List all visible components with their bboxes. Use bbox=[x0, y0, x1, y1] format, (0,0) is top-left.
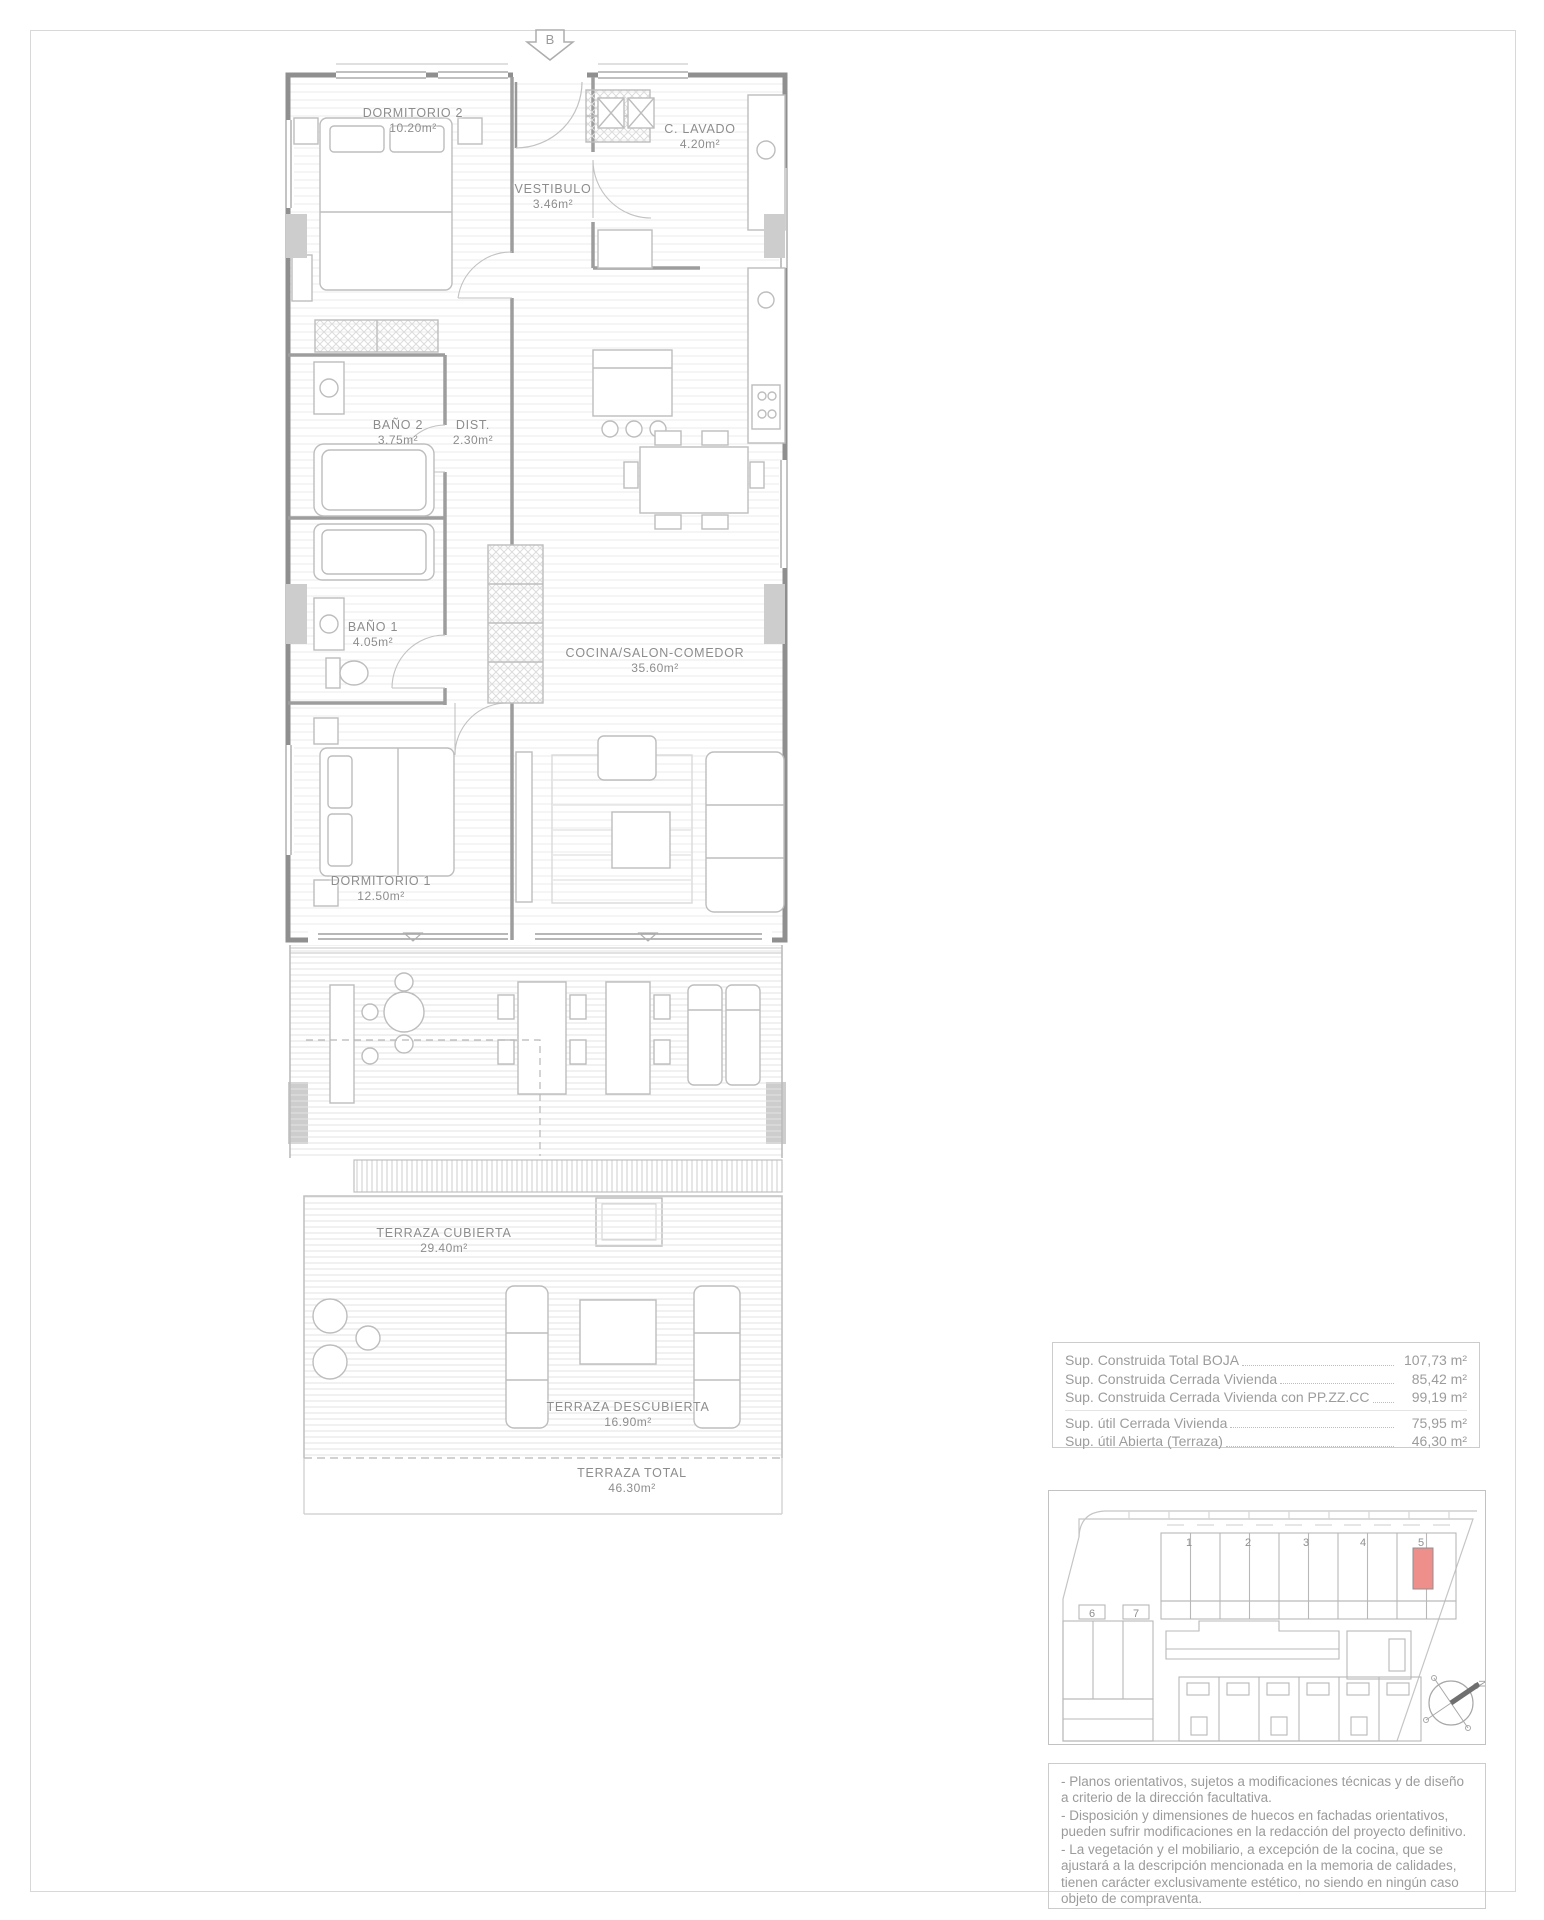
disclaimer-notes: - Planos orientativos, sujetos a modific… bbox=[1048, 1763, 1486, 1909]
section-marker-label: B bbox=[546, 32, 555, 47]
table-row: Sup. Construida Total BOJA107,73 m² bbox=[1065, 1351, 1467, 1370]
site-left-cluster bbox=[1063, 1605, 1153, 1741]
site-block-numbers: 1 2 3 4 5 6 7 bbox=[1089, 1537, 1424, 1620]
block-number-4: 4 bbox=[1360, 1537, 1366, 1549]
block-number-3: 3 bbox=[1303, 1537, 1309, 1549]
room-label-vestibulo: VESTIBULO3.46m² bbox=[515, 182, 592, 211]
terrace-upper bbox=[290, 945, 782, 1158]
table-row: Sup. útil Cerrada Vivienda75,95 m² bbox=[1065, 1410, 1467, 1433]
room-label-terraza-cubierta: TERRAZA CUBIERTA29.40m² bbox=[376, 1226, 511, 1255]
highlighted-unit bbox=[1413, 1548, 1433, 1589]
surface-areas-table: Sup. Construida Total BOJA107,73 m² Sup.… bbox=[1052, 1342, 1480, 1448]
table-row: Sup. útil Abierta (Terraza)46,30 m² bbox=[1065, 1432, 1467, 1451]
compass-label: N bbox=[1476, 1680, 1485, 1687]
block-number-1: 1 bbox=[1186, 1537, 1192, 1549]
table-row: Sup. Construida Cerrada Vivienda85,42 m² bbox=[1065, 1370, 1467, 1389]
room-label-terraza-total: TERRAZA TOTAL46.30m² bbox=[577, 1466, 687, 1495]
kitchen-island-icon bbox=[593, 350, 672, 416]
room-label-dormitorio-2: DORMITORIO 210.20m² bbox=[363, 106, 463, 135]
site-location-plan: 1 2 3 4 5 6 7 N bbox=[1048, 1490, 1486, 1745]
room-label-terraza-descubierta: TERRAZA DESCUBIERTA16.90m² bbox=[546, 1400, 709, 1429]
compass-north-icon: N bbox=[1424, 1676, 1486, 1731]
room-label-bano-1: BAÑO 14.05m² bbox=[348, 620, 398, 649]
note-line: - Planos orientativos, sujetos a modific… bbox=[1061, 1774, 1473, 1807]
block-number-5: 5 bbox=[1418, 1537, 1424, 1549]
room-label-c-lavado: C. LAVADO4.20m² bbox=[664, 122, 736, 151]
note-line: - Disposición y dimensiones de huecos en… bbox=[1061, 1808, 1473, 1841]
block-number-2: 2 bbox=[1245, 1537, 1251, 1549]
table-row: Sup. Construida Cerrada Vivienda con PP.… bbox=[1065, 1388, 1467, 1407]
site-central-cluster bbox=[1166, 1621, 1421, 1741]
block-number-7: 7 bbox=[1133, 1608, 1139, 1620]
room-label-cocina-salon-comedor: COCINA/SALON-COMEDOR35.60m² bbox=[566, 646, 745, 675]
room-label-bano-2: BAÑO 23.75m² bbox=[373, 418, 423, 447]
room-label-dist: DIST.2.30m² bbox=[453, 418, 493, 447]
block-number-6: 6 bbox=[1089, 1608, 1095, 1620]
note-line: - La vegetación y el mobiliario, a excep… bbox=[1061, 1842, 1473, 1908]
room-label-dormitorio-1: DORMITORIO 112.50m² bbox=[331, 874, 431, 903]
section-marker-b: B bbox=[527, 30, 573, 60]
